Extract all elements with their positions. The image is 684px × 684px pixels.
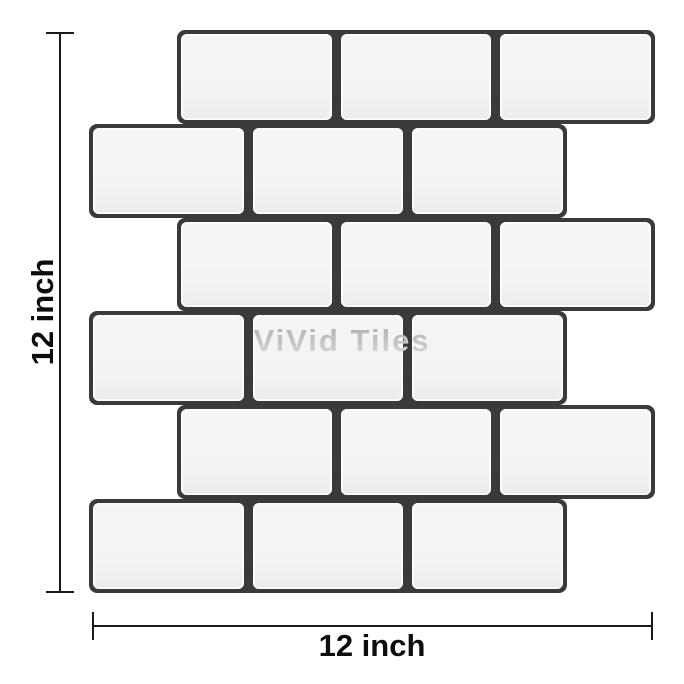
width-dimension-tick-right bbox=[651, 612, 653, 640]
tile bbox=[500, 222, 651, 308]
height-dimension-tick-top bbox=[46, 32, 74, 34]
tile bbox=[93, 503, 244, 589]
tile-row-6 bbox=[89, 499, 567, 593]
tile bbox=[500, 409, 651, 495]
height-dimension-label: 12 inch bbox=[25, 259, 61, 366]
tile-panel bbox=[89, 30, 655, 593]
tile bbox=[412, 315, 563, 401]
width-dimension-label: 12 inch bbox=[319, 628, 426, 664]
brand-watermark: ViVid Tiles bbox=[253, 323, 430, 359]
tile bbox=[341, 222, 492, 308]
tile-row-5 bbox=[177, 405, 655, 499]
tile-row-2 bbox=[89, 124, 567, 218]
tile-row-1 bbox=[177, 30, 655, 124]
tile bbox=[253, 128, 404, 214]
tile bbox=[181, 409, 332, 495]
tile bbox=[93, 128, 244, 214]
tile bbox=[181, 34, 332, 120]
height-dimension-tick-bottom bbox=[46, 591, 74, 593]
tile bbox=[412, 503, 563, 589]
tile bbox=[500, 34, 651, 120]
tile bbox=[412, 128, 563, 214]
tile bbox=[253, 503, 404, 589]
tile-row-3 bbox=[177, 218, 655, 312]
width-dimension-line bbox=[93, 625, 652, 627]
width-dimension-tick-left bbox=[92, 612, 94, 640]
tile bbox=[93, 315, 244, 401]
tile bbox=[181, 222, 332, 308]
tile-product-diagram: 12 inch bbox=[0, 0, 684, 684]
tile bbox=[341, 34, 492, 120]
tile bbox=[341, 409, 492, 495]
